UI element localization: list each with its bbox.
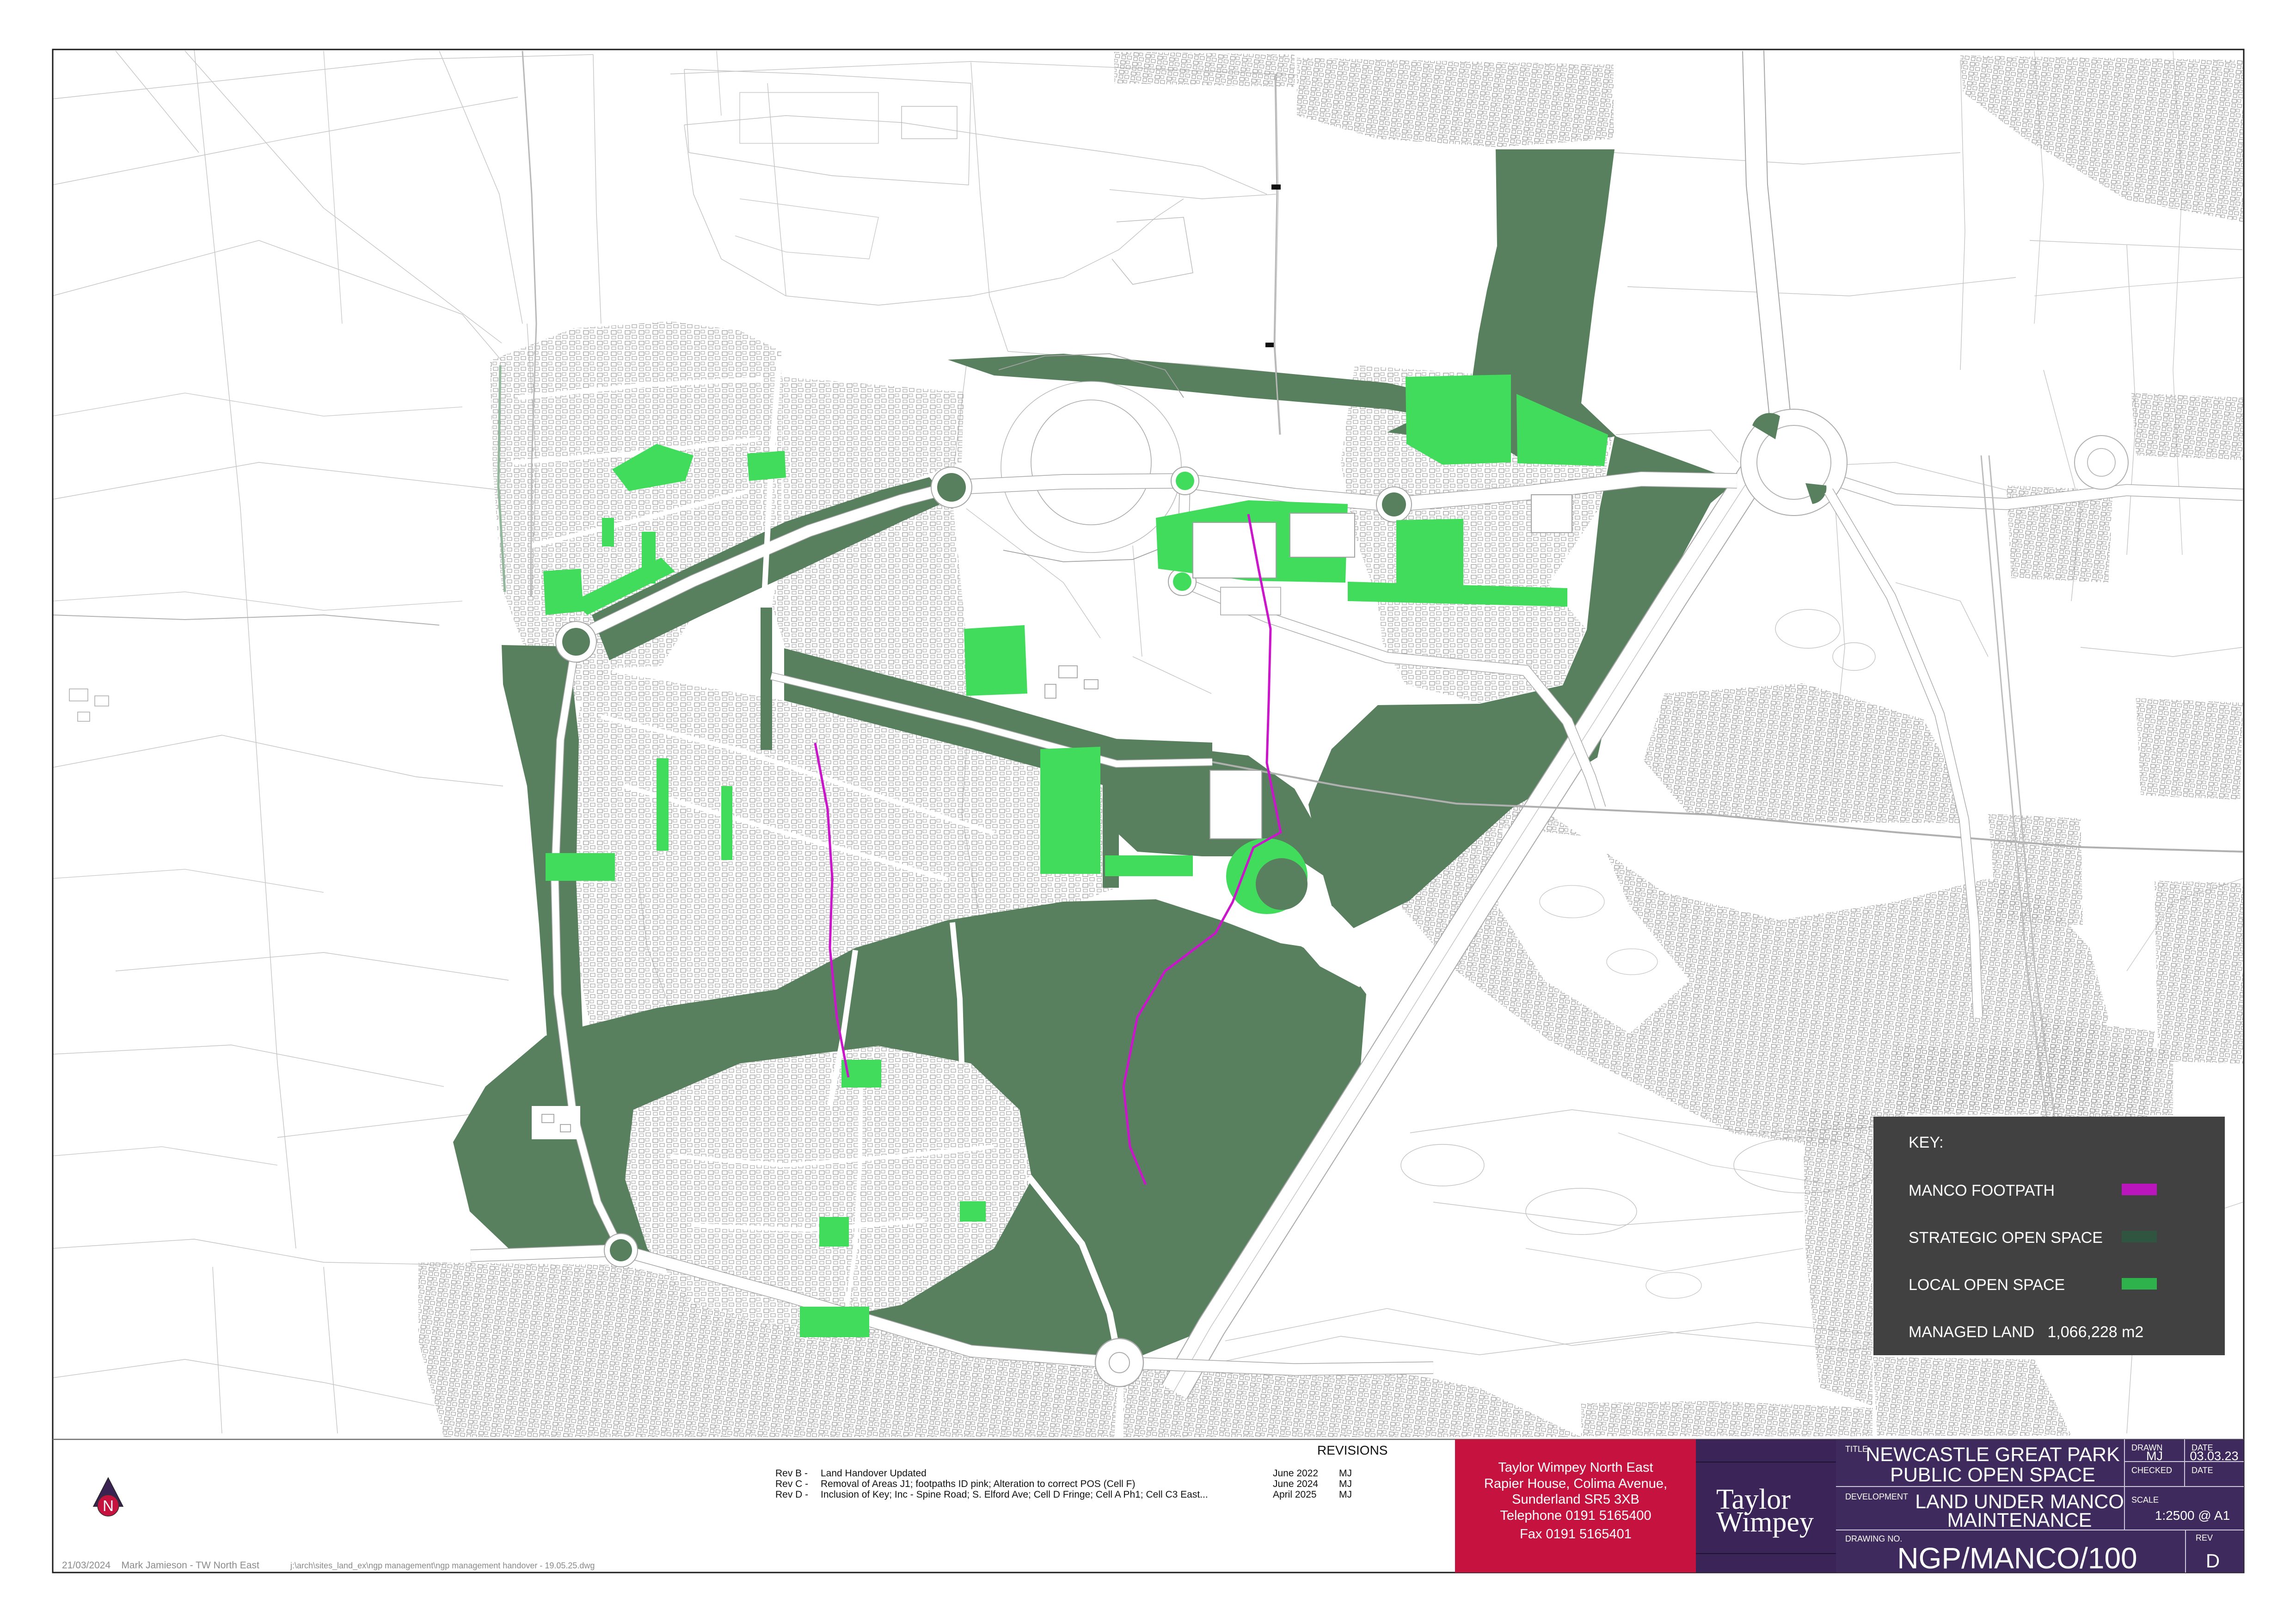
svg-text:Land Handover Updated: Land Handover Updated (821, 1468, 927, 1479)
svg-text:TITLE: TITLE (1845, 1444, 1868, 1454)
svg-text:Rapier House, Colima Avenue,: Rapier House, Colima Avenue, (1484, 1476, 1667, 1491)
svg-text:REV: REV (2196, 1533, 2213, 1542)
svg-text:STRATEGIC OPEN SPACE: STRATEGIC OPEN SPACE (1909, 1229, 2103, 1247)
svg-text:June 2024: June 2024 (1273, 1479, 1318, 1489)
svg-text:NGP/MANCO/100: NGP/MANCO/100 (1897, 1542, 2137, 1575)
svg-text:MJ: MJ (2146, 1449, 2163, 1463)
svg-text:LOCAL OPEN SPACE: LOCAL OPEN SPACE (1909, 1276, 2065, 1294)
svg-text:Inclusion of Key; Inc - Spine: Inclusion of Key; Inc - Spine Road; S. E… (821, 1489, 1208, 1500)
svg-text:CHECKED: CHECKED (2131, 1466, 2172, 1475)
svg-text:PUBLIC OPEN SPACE: PUBLIC OPEN SPACE (1890, 1464, 2095, 1486)
svg-text:Rev C -: Rev C - (775, 1479, 808, 1489)
svg-text:REVISIONS: REVISIONS (1317, 1443, 1387, 1457)
svg-text:21/03/2024 Mark Jamieson -: 21/03/2024 Mark Jamieson - TW North East (62, 1560, 259, 1571)
svg-text:DATE: DATE (2192, 1466, 2213, 1475)
svg-text:Rev B -: Rev B - (775, 1468, 808, 1479)
svg-text:03.03.23: 03.03.23 (2190, 1449, 2238, 1463)
svg-text:April 2025: April 2025 (1273, 1489, 1317, 1500)
svg-text:j:\arch\sites_land_ex\ngp mana: j:\arch\sites_land_ex\ngp management\ngp… (290, 1561, 595, 1571)
svg-text:DEVELOPMENT: DEVELOPMENT (1845, 1492, 1908, 1501)
svg-text:MANAGED LAND 1,066,228 m2: MANAGED LAND 1,066,228 m2 (1909, 1323, 2143, 1341)
svg-text:Sunderland SR5 3XB: Sunderland SR5 3XB (1512, 1492, 1639, 1507)
svg-text:1:2500 @ A1: 1:2500 @ A1 (2155, 1508, 2230, 1523)
svg-text:KEY:: KEY: (1909, 1134, 1944, 1151)
svg-text:Rev D -: Rev D - (775, 1489, 808, 1500)
svg-text:SCALE: SCALE (2131, 1495, 2159, 1505)
svg-text:MJ: MJ (1339, 1489, 1352, 1500)
svg-text:Wimpey: Wimpey (1716, 1506, 1814, 1538)
svg-text:June 2022: June 2022 (1273, 1468, 1318, 1479)
svg-text:Telephone 0191 5165400: Telephone 0191 5165400 (1500, 1508, 1651, 1523)
svg-text:Taylor Wimpey North East: Taylor Wimpey North East (1498, 1460, 1653, 1475)
svg-text:NEWCASTLE GREAT PARK: NEWCASTLE GREAT PARK (1866, 1444, 2120, 1466)
svg-text:Fax 0191 5165401: Fax 0191 5165401 (1520, 1527, 1632, 1542)
svg-text:Removal of Areas J1; footpaths: Removal of Areas J1; footpaths ID pink; … (821, 1479, 1135, 1489)
svg-text:D: D (2206, 1550, 2220, 1572)
svg-text:DRAWING NO.: DRAWING NO. (1845, 1534, 1902, 1543)
svg-text:MJ: MJ (1339, 1468, 1352, 1479)
svg-text:N: N (103, 1497, 114, 1514)
svg-text:MAINTENANCE: MAINTENANCE (1947, 1509, 2092, 1531)
svg-text:MJ: MJ (1339, 1479, 1352, 1489)
svg-text:MANCO FOOTPATH: MANCO FOOTPATH (1909, 1182, 2055, 1199)
